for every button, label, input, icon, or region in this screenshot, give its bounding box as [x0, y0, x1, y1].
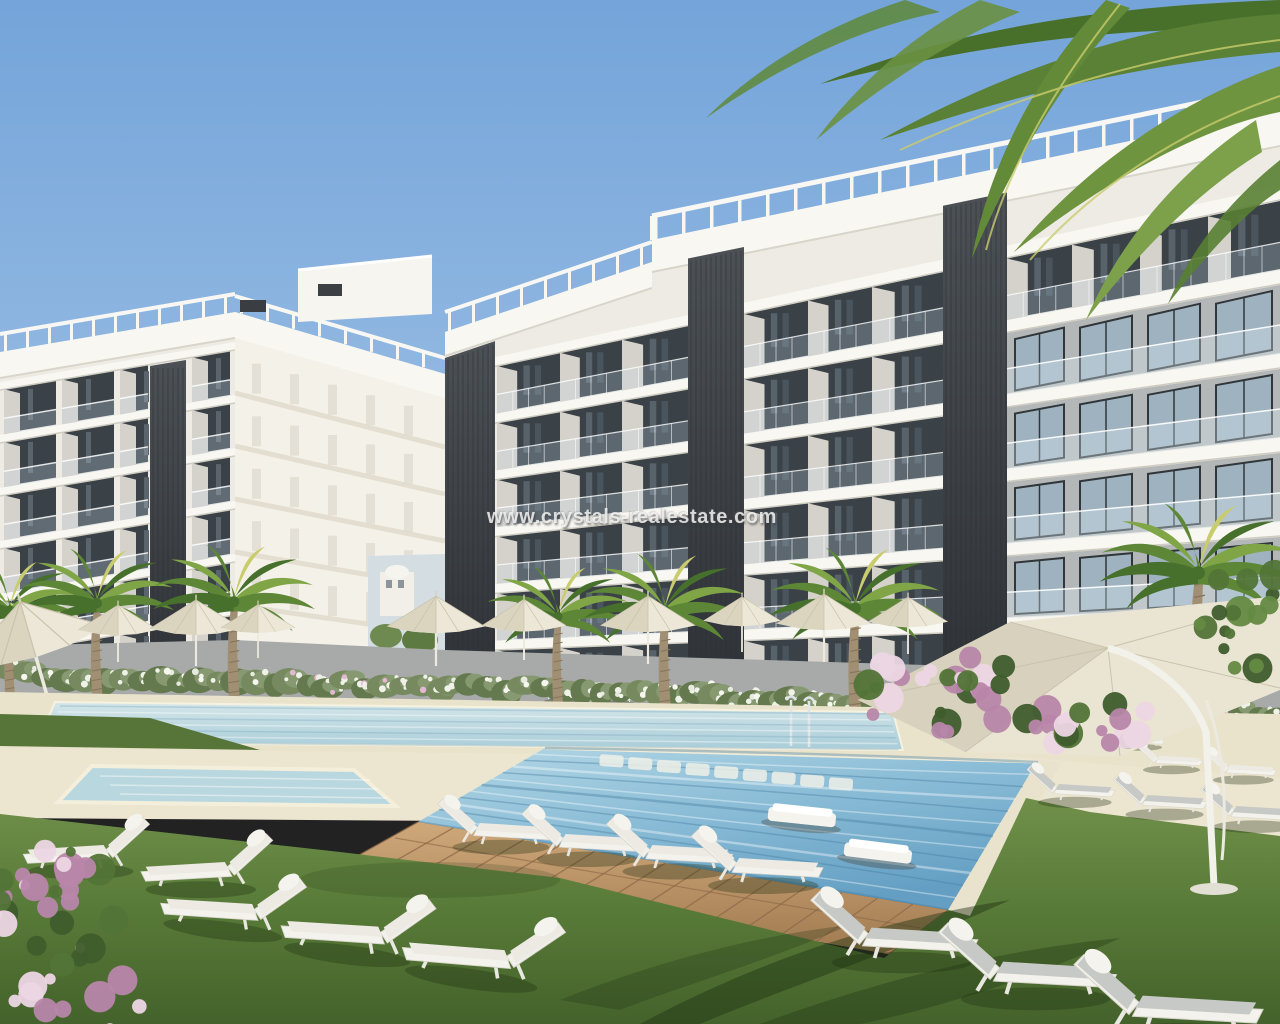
property-photo: www.crystals-realestate.com — [0, 0, 1280, 1024]
watermark-text: www.crystals-realestate.com — [487, 506, 777, 529]
